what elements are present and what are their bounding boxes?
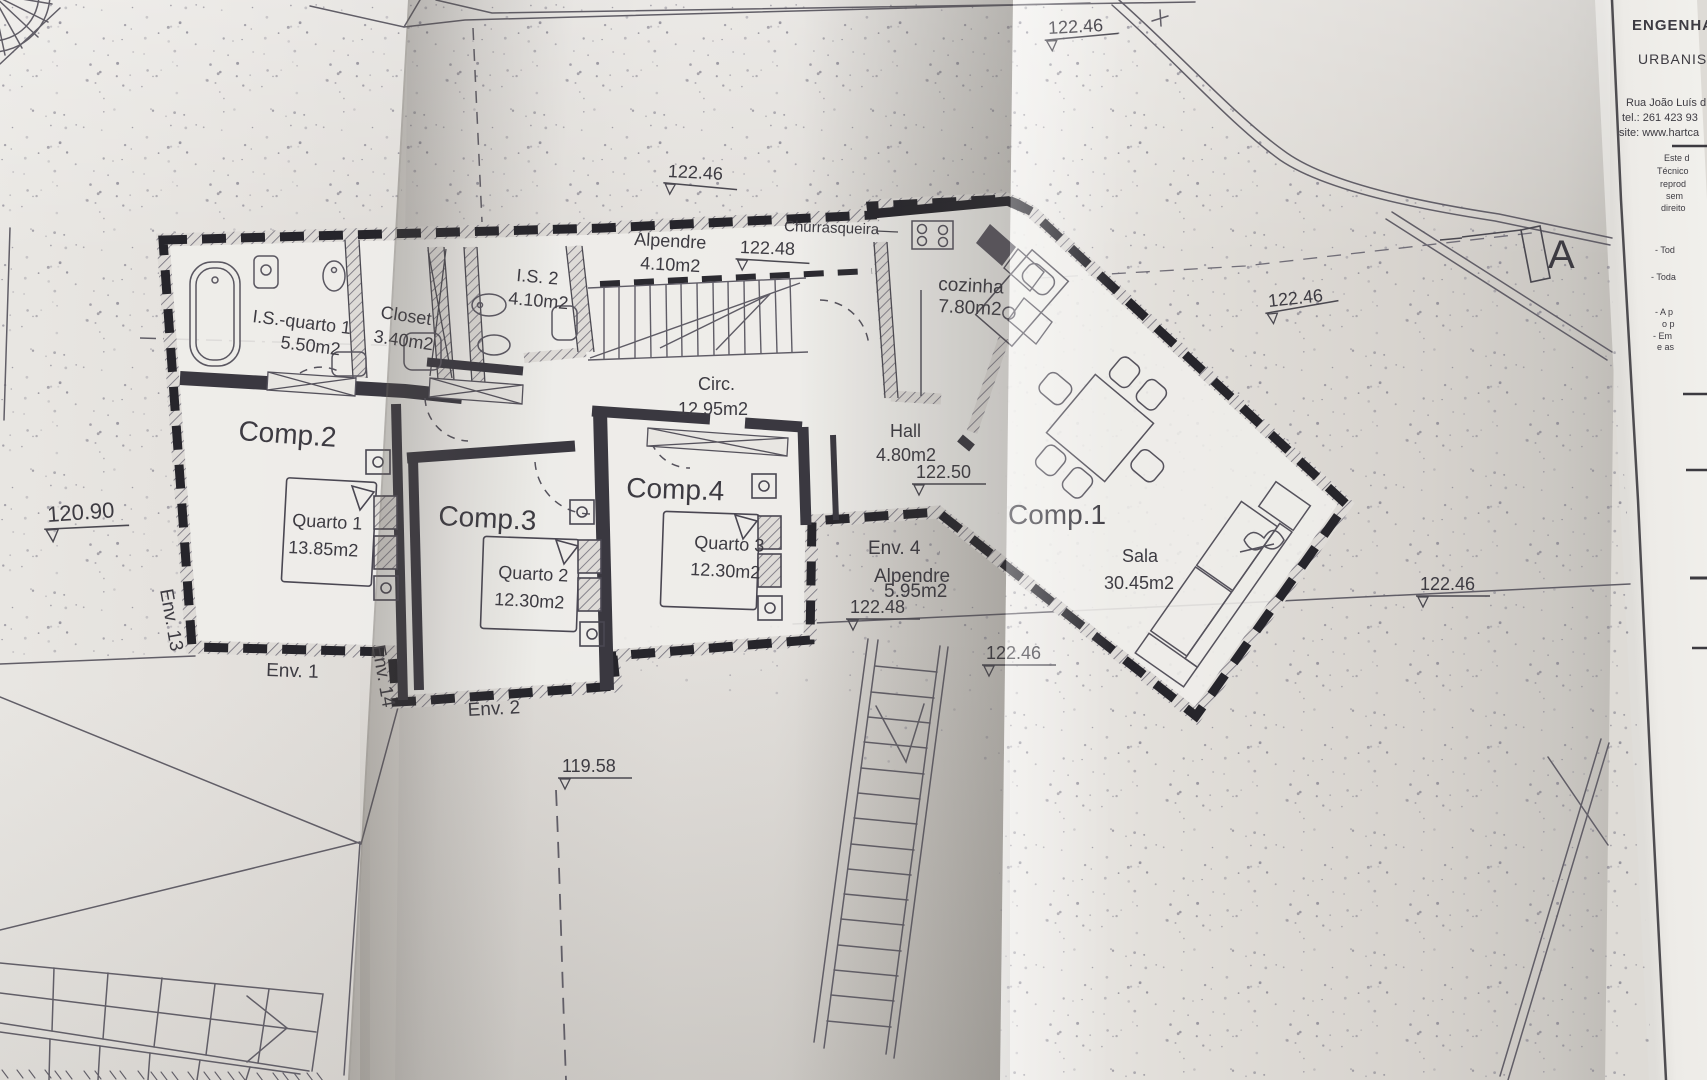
svg-text:122.48: 122.48	[740, 237, 796, 259]
svg-text:Técnico: Técnico	[1657, 166, 1689, 176]
svg-text:12.30m2: 12.30m2	[690, 559, 761, 583]
svg-text:Circ.: Circ.	[698, 374, 735, 394]
svg-text:- A p: - A p	[1655, 307, 1673, 317]
svg-text:- Tod: - Tod	[1655, 245, 1675, 255]
svg-text:reprod: reprod	[1660, 179, 1686, 189]
svg-text:A: A	[1548, 233, 1575, 277]
svg-text:site: www.hartca: site: www.hartca	[1619, 127, 1700, 139]
svg-text:e as: e as	[1657, 342, 1675, 352]
svg-text:- Em: - Em	[1653, 331, 1672, 341]
svg-text:119.58: 119.58	[562, 756, 616, 776]
svg-text:122.46: 122.46	[667, 161, 723, 184]
svg-text:Quarto 1: Quarto 1	[292, 510, 363, 534]
svg-text:Quarto 3: Quarto 3	[694, 532, 765, 556]
svg-text:sem: sem	[1666, 191, 1683, 201]
svg-text:Env. 1: Env. 1	[266, 660, 319, 683]
svg-text:direito: direito	[1661, 203, 1686, 213]
svg-text:ENGENHA: ENGENHA	[1632, 17, 1707, 34]
svg-text:Este d: Este d	[1664, 153, 1690, 163]
svg-text:Alpendre: Alpendre	[634, 229, 707, 253]
svg-text:122.46: 122.46	[1420, 574, 1475, 594]
svg-text:Comp.4: Comp.4	[626, 472, 725, 506]
svg-text:120.90: 120.90	[46, 497, 115, 527]
svg-text:o p: o p	[1662, 319, 1675, 329]
svg-text:Sala: Sala	[1122, 546, 1159, 566]
svg-text:Rua João Luís d: Rua João Luís d	[1626, 97, 1706, 109]
svg-text:- Toda: - Toda	[1651, 272, 1676, 282]
svg-text:tel.: 261 423 93: tel.: 261 423 93	[1622, 112, 1698, 124]
svg-text:URBANIS: URBANIS	[1638, 51, 1707, 67]
svg-text:4.10m2: 4.10m2	[640, 253, 701, 276]
svg-text:13.85m2: 13.85m2	[288, 537, 359, 561]
svg-text:12.95m2: 12.95m2	[678, 399, 748, 419]
